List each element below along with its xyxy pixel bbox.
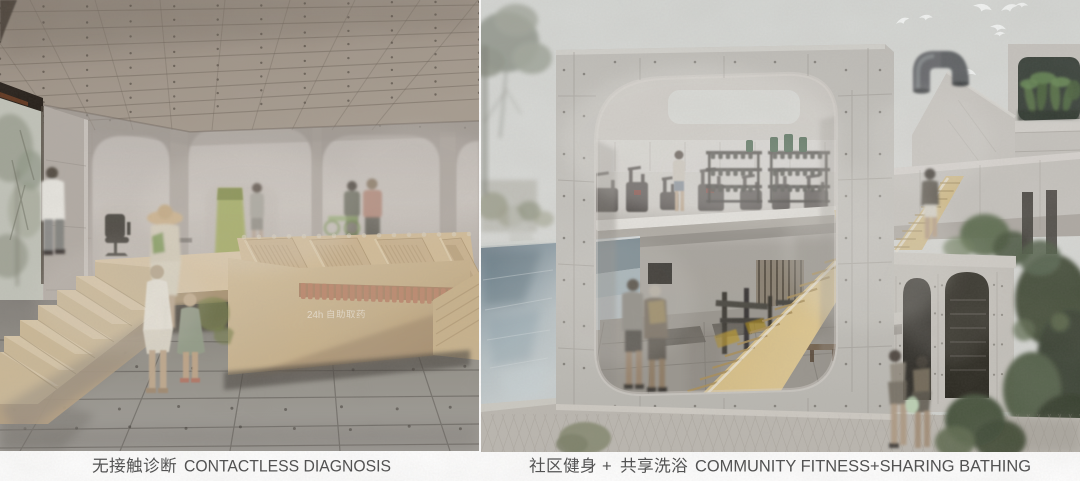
svg-text:COMMUNITY FITNESS+SHARING BATH: COMMUNITY FITNESS+SHARING BATHING <box>695 457 1031 476</box>
svg-text:CONTACTLESS DIAGNOSIS: CONTACTLESS DIAGNOSIS <box>184 457 391 476</box>
svg-text:+: + <box>602 457 612 476</box>
